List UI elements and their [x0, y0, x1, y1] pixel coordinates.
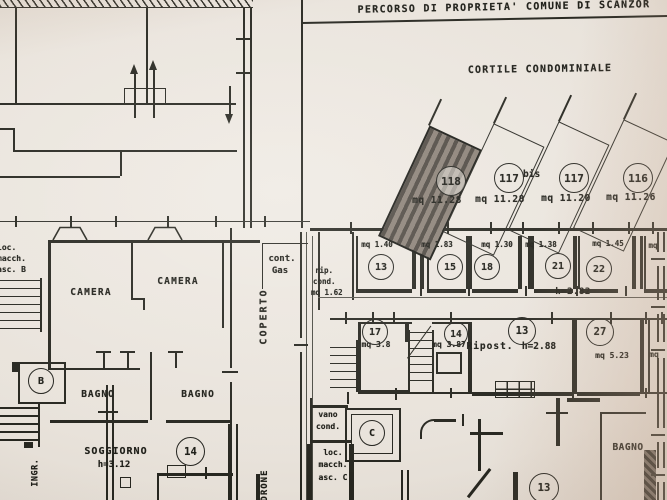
floorplan-drawing: PERCORSO DI PROPRIETA' COMUNE DI SCANZOR…: [0, 0, 667, 500]
wall: [166, 420, 230, 423]
wall: [103, 352, 105, 368]
ingresso-label: INGR.: [31, 451, 40, 495]
wall: [300, 352, 302, 500]
parking-number-badge: 117: [559, 163, 589, 193]
rip-cond-label: mq 1.62: [311, 289, 343, 297]
cantina-area-label: mq 1.38: [516, 241, 566, 249]
parking-number-badge: 117: [494, 163, 524, 193]
rip-cond-label: rip.: [315, 267, 333, 275]
stair-step: [330, 363, 356, 364]
wall: [657, 482, 659, 500]
room-label-soggiorno: SOGGIORNO: [70, 446, 162, 457]
stair-step: [0, 280, 40, 281]
wall: [50, 420, 148, 423]
parking-area-label: mq 11.28: [472, 195, 528, 205]
arrow-up-icon: [149, 60, 157, 70]
fixture-symbol: [120, 477, 131, 488]
tick: [15, 216, 17, 227]
tick: [645, 312, 647, 324]
tick: [205, 467, 207, 479]
tick: [222, 371, 238, 373]
machine-room-label: macch.: [0, 255, 26, 264]
stair-arrow-up: [153, 70, 155, 118]
cantina-number-badge: 13: [368, 254, 394, 280]
wall: [301, 0, 303, 228]
tick: [347, 392, 349, 404]
ripostiglio-label: Ripost.: [459, 342, 521, 352]
wall: [657, 314, 659, 342]
tick: [651, 474, 665, 476]
parking-suffix: bis: [523, 170, 540, 180]
tick: [420, 286, 422, 296]
parking-line: [623, 93, 637, 120]
wall: [427, 289, 466, 293]
wall: [318, 297, 667, 298]
wall: [408, 330, 410, 392]
hatched-wall-strip: [0, 0, 253, 8]
arrow-down-icon: [225, 114, 233, 124]
wall: [472, 289, 518, 293]
tick: [345, 312, 347, 324]
radiator-symbol: [495, 381, 535, 398]
wall: [567, 398, 600, 402]
stair-step: [330, 387, 356, 388]
parking-number-badge: 116: [623, 163, 653, 193]
parking-area-label: mq 11.20: [538, 194, 594, 204]
cantina-area-label: mq 5.23: [586, 352, 638, 361]
stair-step: [408, 356, 432, 357]
boundary-line: [302, 15, 667, 24]
cantina-number-badge: 27: [586, 318, 614, 346]
wall: [600, 412, 602, 500]
apartment-number-badge: 14: [176, 437, 205, 466]
tick: [98, 411, 118, 413]
wall: [48, 240, 51, 368]
cantina-number-badge: 18: [474, 254, 500, 280]
androne-label: ANDRONE: [261, 457, 271, 500]
wall: [0, 103, 236, 105]
wall: [230, 228, 232, 368]
arrow-up-icon: [130, 64, 138, 74]
cantina-area-label: mq: [642, 351, 666, 360]
wall: [663, 482, 665, 500]
stair-step: [0, 328, 40, 329]
wall: [150, 352, 152, 420]
wall: [131, 240, 133, 300]
stair-step: [408, 372, 432, 373]
wall: [556, 398, 560, 446]
cantina-number-badge: 22: [586, 256, 612, 282]
stair-step: [0, 407, 38, 409]
stair-landing-box: [124, 88, 166, 105]
wall: [663, 266, 665, 300]
wall: [143, 298, 145, 310]
stair-arrow-down: [229, 86, 231, 116]
tick: [525, 286, 527, 296]
tick: [236, 38, 252, 40]
gas-meter-label: cont.: [262, 255, 302, 265]
wall: [401, 470, 403, 500]
elevator-c-badge: C: [359, 420, 385, 446]
stair-step: [0, 431, 38, 433]
machine-room-c-label: asc. C: [314, 474, 352, 483]
wall-curve: [420, 419, 438, 439]
wall: [663, 442, 665, 468]
wall: [663, 314, 665, 342]
wall: [12, 362, 18, 372]
shaft-symbol: [436, 352, 462, 374]
parking-number-badge: 118: [436, 166, 466, 196]
stair-step: [408, 364, 432, 365]
parking-line: [558, 95, 572, 122]
cantina-area-label: mq 1.40: [352, 241, 402, 249]
wall: [307, 444, 312, 500]
coperto-label: COPERTO: [259, 277, 270, 357]
stair-step: [0, 288, 40, 289]
stair-step: [0, 296, 40, 297]
wall: [13, 128, 15, 150]
wall: [230, 382, 232, 424]
machine-room-label: asc. B: [0, 266, 26, 275]
wall: [15, 7, 17, 103]
tick: [645, 388, 647, 398]
stair-step: [0, 312, 40, 313]
wall: [312, 236, 313, 500]
fixture-symbol: [167, 465, 186, 478]
window-symbol: [147, 226, 183, 240]
percorso-label: PERCORSO DI PROPRIETA' COMUNE DI SCANZOR: [337, 0, 667, 16]
wall: [657, 442, 659, 468]
cantina-number-badge: 17: [362, 319, 388, 345]
wall: [120, 351, 135, 353]
cantina-number-badge: 21: [545, 253, 571, 279]
wall: [657, 266, 659, 300]
tick: [462, 414, 464, 426]
stair-step: [0, 415, 38, 417]
wall: [310, 405, 348, 408]
tick: [115, 216, 117, 227]
room-label-bagno-right: BAGNO: [162, 390, 234, 400]
tick: [264, 216, 266, 227]
wall: [112, 385, 114, 500]
wall: [358, 322, 361, 392]
wall: [0, 176, 120, 178]
wall: [600, 412, 646, 414]
machine-room-c-label: loc.: [314, 449, 352, 458]
cantina-number-badge: 13: [508, 317, 536, 345]
wall: [228, 424, 232, 500]
stair-step: [408, 380, 432, 381]
wall: [24, 442, 33, 448]
wall: [577, 392, 640, 396]
wall: [40, 278, 42, 332]
tick: [468, 286, 470, 296]
parking-area-label: mq 11.28: [409, 196, 465, 206]
wall: [38, 403, 40, 447]
stair-step: [330, 379, 356, 380]
stair-arrow-up: [134, 74, 136, 118]
wall: [222, 240, 224, 328]
tick: [625, 286, 627, 296]
window-symbol: [52, 226, 88, 240]
stair-step: [408, 332, 432, 333]
wall: [657, 358, 659, 428]
parking-area-label: mq 11.26: [603, 193, 659, 203]
tick: [651, 306, 665, 308]
wall: [243, 7, 245, 228]
stair-step: [0, 439, 38, 441]
cantina-area-label: mq 1.83: [412, 241, 462, 249]
stair-step: [330, 355, 356, 356]
room-label-camera-left: CAMERA: [55, 288, 127, 298]
rip-cond-label: cond.: [313, 278, 336, 286]
wall: [478, 419, 481, 471]
wall: [157, 473, 159, 500]
ceiling-height-label: h=2.82: [546, 288, 600, 298]
tick: [551, 312, 553, 324]
wall: [127, 352, 129, 368]
wall: [356, 289, 412, 293]
wall: [120, 150, 122, 176]
wall: [434, 419, 456, 422]
machine-room-label: loc.: [0, 244, 16, 253]
wall: [250, 7, 252, 228]
wall: [300, 232, 302, 338]
wall: [470, 432, 503, 435]
wall: [578, 236, 580, 289]
tick: [215, 216, 217, 227]
stair-step: [0, 423, 38, 425]
wall: [573, 236, 577, 289]
tick: [450, 388, 452, 398]
tick: [236, 72, 252, 74]
wall: [13, 150, 237, 152]
cantina-area-label: mq 1.30: [472, 241, 522, 249]
wall: [175, 352, 177, 368]
wall: [663, 358, 665, 428]
stair-step: [0, 304, 40, 305]
room-label-bagno-bottom: BAGNO: [601, 443, 655, 453]
wall: [96, 351, 111, 353]
parking-line: [428, 99, 442, 126]
wall: [168, 351, 183, 353]
tick: [652, 222, 654, 234]
wall: [572, 318, 577, 392]
wall: [236, 424, 238, 500]
tick: [651, 258, 665, 260]
wall: [310, 398, 312, 444]
machine-room-c-label: macch.: [314, 461, 352, 470]
wall: [106, 385, 108, 500]
tick: [546, 412, 568, 414]
elevator-b-badge: B: [28, 368, 54, 394]
tick: [651, 434, 665, 436]
gas-meter-label: Gas: [260, 267, 300, 277]
wall: [0, 128, 13, 130]
cantina-area-label: mq: [641, 242, 665, 250]
apartment-number-badge: 13: [529, 473, 559, 500]
cantina-area-label: mq 1.45: [583, 240, 633, 248]
wall: [513, 472, 518, 500]
wall: [312, 440, 352, 443]
room-label-camera-right: CAMERA: [142, 277, 214, 287]
stair-step: [330, 371, 356, 372]
door-leaf: [467, 468, 491, 498]
soggiorno-height-label: h=3.12: [86, 461, 142, 471]
parking-line: [493, 97, 507, 124]
tick: [395, 388, 397, 400]
floorplan-photo: PERCORSO DI PROPRIETA' COMUNE DI SCANZOR…: [0, 0, 667, 500]
cantina-number-badge: 15: [437, 254, 463, 280]
wall: [468, 322, 472, 392]
stair-step: [0, 320, 40, 321]
cantina-number-badge: 14: [444, 322, 468, 346]
wall: [48, 240, 260, 243]
wall: [262, 243, 308, 244]
room-label-bagno-left: BAGNO: [62, 390, 134, 400]
cortile-label: CORTILE CONDOMINIALE: [462, 63, 618, 76]
wall: [407, 470, 409, 500]
vano-cond-label: cond.: [309, 423, 347, 432]
tick: [294, 344, 308, 346]
vano-cond-label: vano: [309, 411, 347, 420]
tick: [572, 388, 574, 398]
